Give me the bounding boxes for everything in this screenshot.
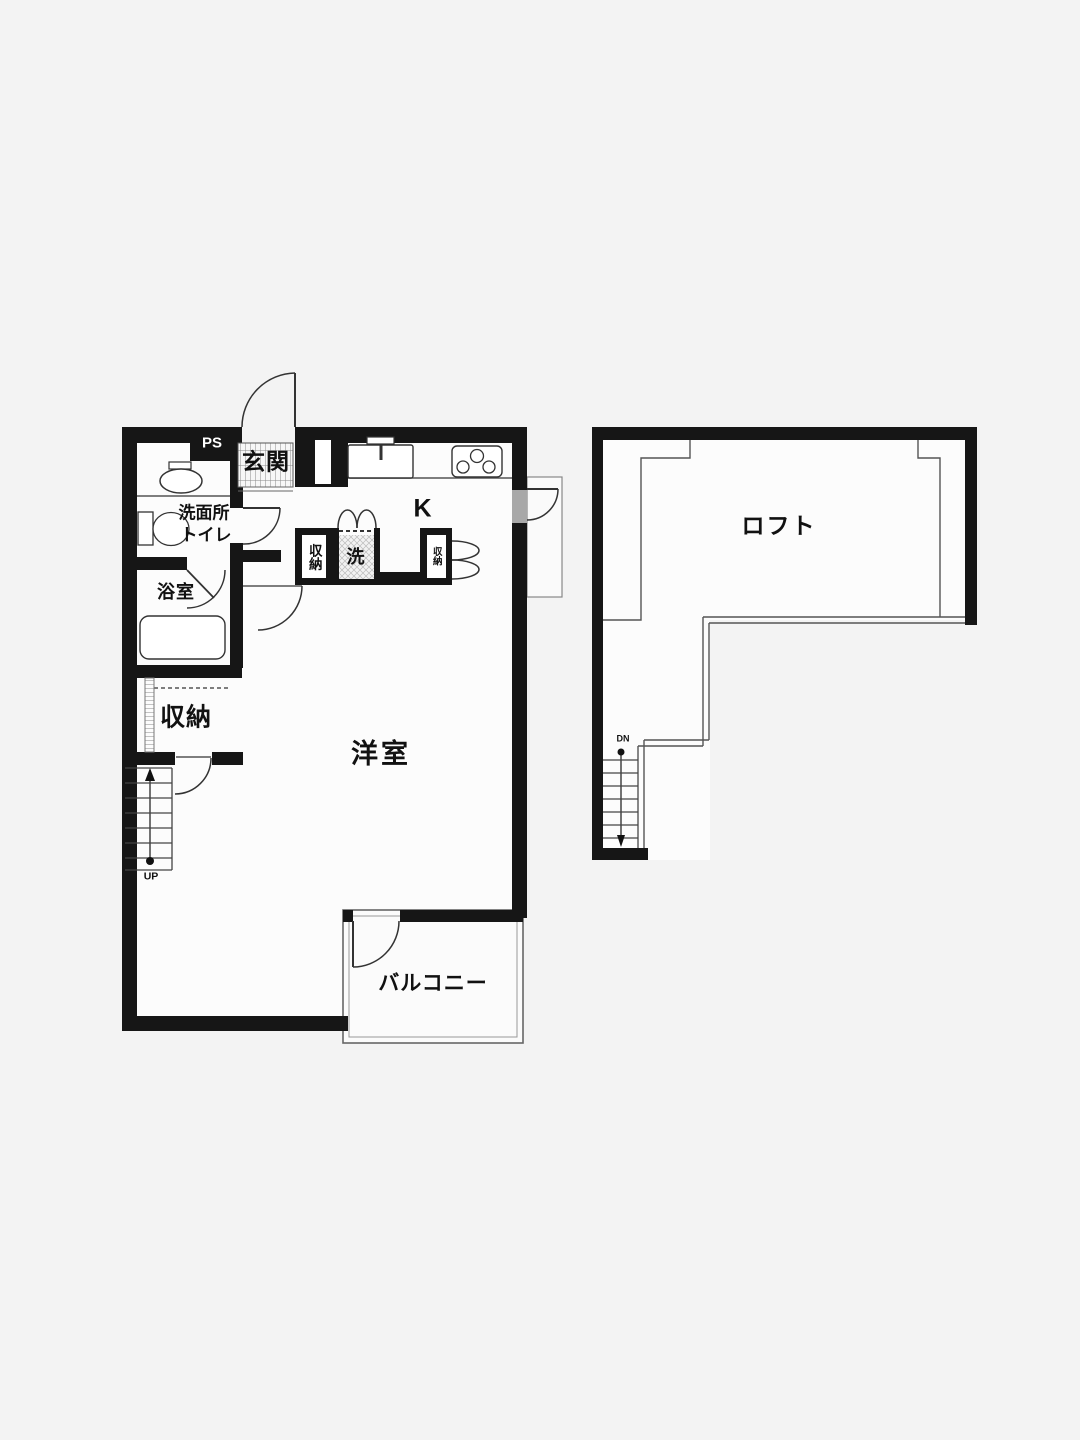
bathtub-icon xyxy=(140,616,225,659)
label-western-room: 洋室 xyxy=(351,738,411,772)
stove-icon xyxy=(452,446,502,477)
side-door-opening xyxy=(512,490,527,523)
label-bathroom: 浴室 xyxy=(157,581,195,604)
label-washer: 洗 xyxy=(347,546,366,569)
floor-plan-page: PS 玄関 洗面所 トイレ 浴室 収納 収納 洗 収納 K 洋室 バルコニー U… xyxy=(0,0,1080,1440)
label-hall-closet: 収納 xyxy=(307,544,321,571)
washer-box-dashed-top xyxy=(339,527,374,535)
loft-stair-start-dot xyxy=(618,749,625,756)
label-closet: 収納 xyxy=(160,702,212,733)
room-fills xyxy=(137,427,977,1043)
label-washroom-line2: トイレ xyxy=(181,524,232,545)
label-stairs-up: UP xyxy=(144,870,159,883)
label-loft: ロフト xyxy=(742,512,817,541)
label-entrance: 玄関 xyxy=(242,448,290,477)
label-pipe-space: PS xyxy=(202,435,222,454)
stair-start-dot xyxy=(146,857,154,865)
entrance-door xyxy=(242,373,295,427)
closet-hatch-strip xyxy=(145,678,154,752)
label-kitchen: K xyxy=(413,493,432,524)
label-washroom-line1: 洗面所 xyxy=(179,502,230,523)
label-kitchen-closet: 収納 xyxy=(431,547,441,566)
label-balcony: バルコニー xyxy=(378,971,488,997)
label-stairs-down: DN xyxy=(617,733,630,744)
